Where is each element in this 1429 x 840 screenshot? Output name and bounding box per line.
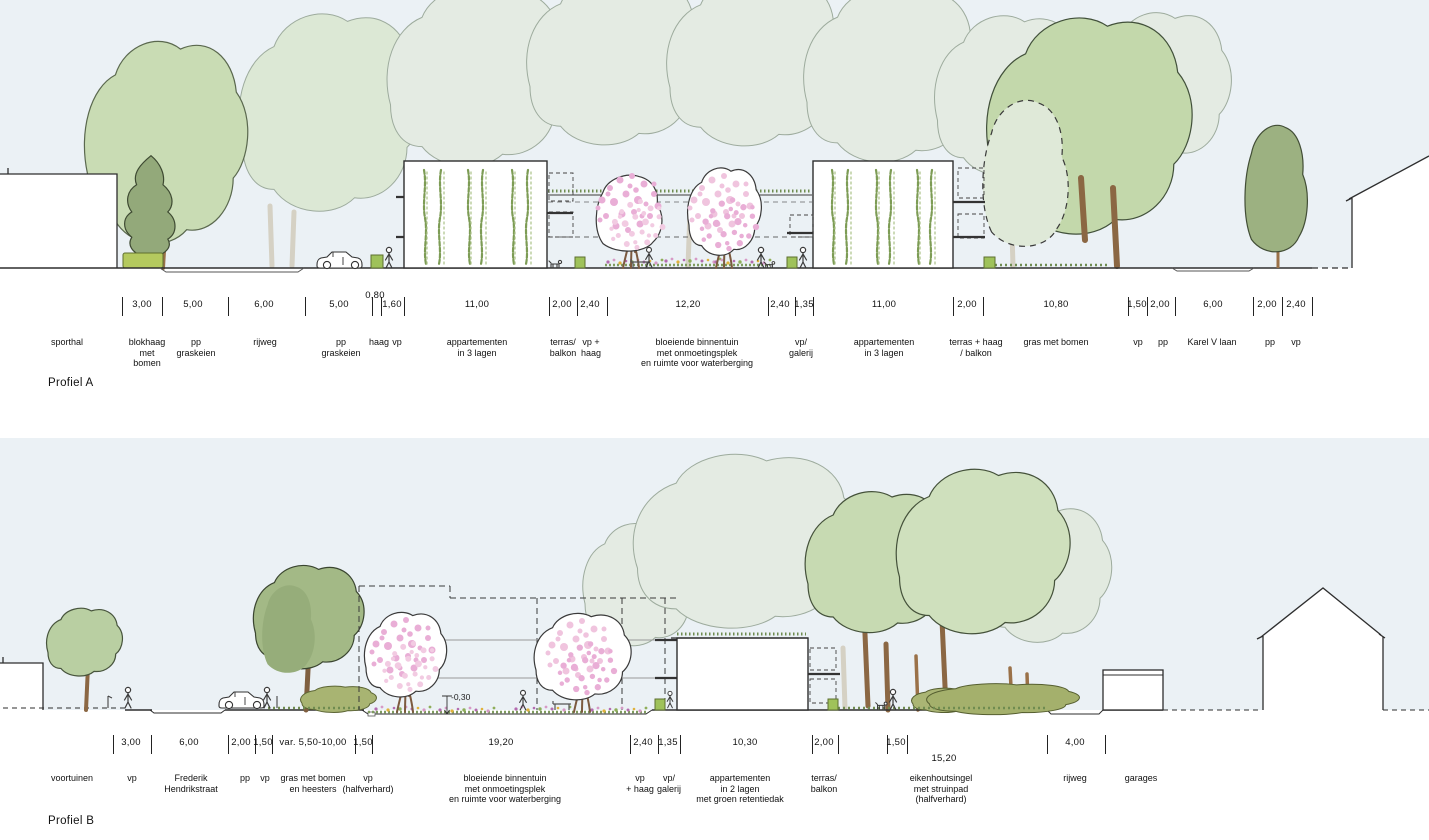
apartment-building-a1 (404, 161, 547, 268)
dimension-tick (1282, 297, 1283, 316)
zone-label: terras + haag / balkon (949, 337, 1002, 358)
dimension-tick (1175, 297, 1176, 316)
dimension-tick (577, 297, 578, 316)
dimension-value: 6,00 (1203, 299, 1223, 310)
dimension-value: 11,00 (465, 299, 489, 310)
zone-label: vp/ galerij (657, 773, 681, 794)
dimension-tick (607, 297, 608, 316)
zone-label: vp (1291, 337, 1301, 348)
apartment-building-a2 (813, 161, 953, 268)
depth-annotation: -0,30 (451, 692, 470, 702)
dimension-tick (1312, 297, 1313, 316)
dimension-value: 2,40 (770, 299, 790, 310)
dimension-tick (549, 297, 550, 316)
dimension-value: 19,20 (488, 737, 513, 748)
ground-line-a (0, 268, 1352, 272)
dimension-value: 1,50 (1127, 299, 1147, 310)
dimension-tick (1253, 297, 1254, 316)
dimension-tick (1105, 735, 1106, 754)
dimension-value: 4,00 (1065, 737, 1085, 748)
dimension-value: 2,00 (814, 737, 834, 748)
zone-label: garages (1125, 773, 1158, 784)
zone-label: Frederik Hendrikstraat (164, 773, 218, 794)
dashed-proposed-tree (983, 100, 1068, 246)
dimension-value: 2,40 (1286, 299, 1306, 310)
dimension-tick (122, 297, 123, 316)
dimension-value: 2,00 (1257, 299, 1277, 310)
zone-label: bloeiende binnentuin met onmoetingsplek … (641, 337, 753, 369)
dimension-value: var. 5,50-10,00 (279, 737, 346, 748)
zone-label: appartementen in 2 lagen met groen reten… (696, 773, 784, 805)
zone-label: blokhaag met bomen (129, 337, 166, 369)
dimension-tick (680, 735, 681, 754)
dimension-value: 5,00 (183, 299, 203, 310)
dimension-tick (162, 297, 163, 316)
dimension-value: 15,20 (931, 753, 956, 764)
left-building-b (0, 657, 43, 710)
zone-label: haag (369, 337, 389, 348)
zone-label: vp + haag (581, 337, 601, 358)
zone-label: gras met bomen en heesters (280, 773, 345, 794)
blokhaag-hedge (123, 253, 163, 268)
dimension-tick (838, 735, 839, 754)
zone-label: pp (240, 773, 250, 784)
profile-sections-canvas: 3,005,006,005,000,801,6011,002,002,4012,… (0, 0, 1429, 840)
dimension-tick (812, 735, 813, 754)
dimension-tick (768, 297, 769, 316)
zone-label: terras/ balkon (811, 773, 838, 794)
dimension-value: 5,00 (329, 299, 349, 310)
zone-label: vp (392, 337, 402, 348)
dimension-tick (305, 297, 306, 316)
dimension-tick (151, 735, 152, 754)
zone-label: appartementen in 3 lagen (854, 337, 915, 358)
zone-label: vp + haag (626, 773, 654, 794)
zone-label: gras met bomen (1023, 337, 1088, 348)
dimension-value: 1,35 (794, 299, 814, 310)
dimension-value: 11,00 (872, 299, 896, 310)
dimension-value: 2,00 (552, 299, 572, 310)
dimension-value: 1,35 (658, 737, 678, 748)
sporthal-building (0, 168, 117, 268)
dimension-tick (1147, 297, 1148, 316)
zone-label: pp graskeien (176, 337, 215, 358)
zone-label: vp (halfverhard) (342, 773, 393, 794)
profiel-a-drawing (0, 0, 1429, 440)
garage-building (1103, 670, 1163, 710)
zone-label: pp (1158, 337, 1168, 348)
zone-label: vp (260, 773, 270, 784)
dimension-tick (404, 297, 405, 316)
dimension-tick (630, 735, 631, 754)
dimension-value: 2,00 (231, 737, 251, 748)
dimension-value: 1,60 (382, 299, 402, 310)
zone-label: terras/ balkon (550, 337, 577, 358)
dimension-value: 3,00 (132, 299, 152, 310)
dimension-tick (228, 735, 229, 754)
zone-label: pp graskeien (321, 337, 360, 358)
zone-label: pp (1265, 337, 1275, 348)
profiel-b-title: Profiel B (48, 815, 94, 827)
dimension-value: 12,20 (675, 299, 700, 310)
zone-label: vp (1133, 337, 1143, 348)
dimension-value: 6,00 (254, 299, 274, 310)
dimension-tick (983, 297, 984, 316)
dimension-tick (228, 297, 229, 316)
zone-label: vp (127, 773, 137, 784)
dimension-value: 10,80 (1043, 299, 1068, 310)
profiel-a-title: Profiel A (48, 377, 94, 389)
zone-label: bloeiende binnentuin met onmoetingsplek … (449, 773, 561, 805)
zone-label: Karel V laan (1187, 337, 1236, 348)
dimension-value: 1,50 (253, 737, 273, 748)
dimension-value: 2,00 (957, 299, 977, 310)
dimension-value: 6,00 (179, 737, 199, 748)
dimension-value: 2,40 (633, 737, 653, 748)
dimension-tick (113, 735, 114, 754)
dimension-value: 2,00 (1150, 299, 1170, 310)
zone-label: rijweg (1063, 773, 1087, 784)
zone-label: appartementen in 3 lagen (447, 337, 508, 358)
dimension-value: 10,30 (732, 737, 757, 748)
zone-label: rijweg (253, 337, 277, 348)
dimension-tick (1047, 735, 1048, 754)
dimension-tick (907, 735, 908, 754)
dimension-value: 2,40 (580, 299, 600, 310)
dimension-tick (953, 297, 954, 316)
dimension-value: 3,00 (121, 737, 141, 748)
zone-label: vp/ galerij (789, 337, 813, 358)
zone-label: voortuinen (51, 773, 93, 784)
dimension-value: 1,50 (353, 737, 373, 748)
zone-label: eikenhoutsingel met struinpad (halfverha… (910, 773, 973, 805)
dimension-value: 1,50 (886, 737, 906, 748)
zone-label: sporthal (51, 337, 83, 348)
